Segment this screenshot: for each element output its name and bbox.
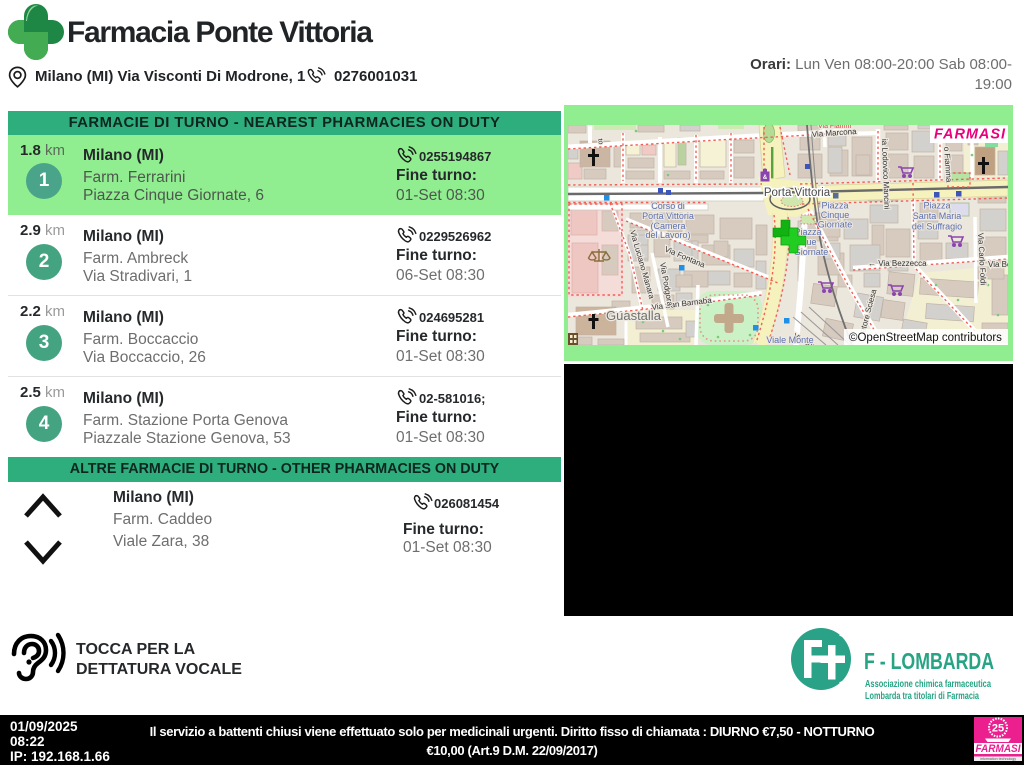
svg-text:Cinque: Cinque bbox=[821, 210, 850, 220]
svg-text:Piazza: Piazza bbox=[923, 201, 950, 211]
svg-text:Guastalla: Guastalla bbox=[606, 308, 662, 323]
svg-text:Viale Monte: Viale Monte bbox=[766, 335, 813, 345]
svg-text:information technology: information technology bbox=[980, 757, 1016, 761]
svg-text:Porta Vittoria: Porta Vittoria bbox=[764, 187, 831, 199]
svg-text:Via Fiamm: Via Fiamm bbox=[818, 125, 851, 130]
svg-text:del Suffragio: del Suffragio bbox=[912, 222, 962, 232]
svg-text:del Lavoro): del Lavoro) bbox=[645, 230, 690, 240]
svg-text:©OpenStreetMap contributors: ©OpenStreetMap contributors bbox=[849, 332, 1002, 344]
svg-text:Giornate: Giornate bbox=[818, 220, 853, 230]
svg-text:Piazza: Piazza bbox=[821, 201, 848, 211]
svg-text:Via Bez: Via Bez bbox=[988, 260, 1008, 269]
svg-text:← Via Bezzecca: ← Via Bezzecca bbox=[868, 259, 927, 268]
svg-text:Santa Maria: Santa Maria bbox=[913, 211, 962, 221]
svg-text:FARMASI: FARMASI bbox=[976, 743, 1022, 755]
svg-text:FARMASI: FARMASI bbox=[934, 127, 1006, 143]
svg-text:Associazione chimica farmaceut: Associazione chimica farmaceutica bbox=[865, 679, 991, 690]
svg-text:&: & bbox=[763, 175, 768, 181]
svg-text:Giornate: Giornate bbox=[794, 247, 829, 257]
svg-text:Lombarda tra titolari di Farma: Lombarda tra titolari di Farmacia bbox=[865, 691, 979, 702]
svg-text:F - LOMBARDA: F - LOMBARDA bbox=[864, 648, 994, 674]
svg-text:25: 25 bbox=[992, 723, 1004, 735]
svg-text:Piazza: Piazza bbox=[794, 227, 821, 237]
svg-text:Porta Vittoria: Porta Vittoria bbox=[642, 211, 694, 221]
svg-text:Corso di: Corso di bbox=[651, 201, 685, 211]
